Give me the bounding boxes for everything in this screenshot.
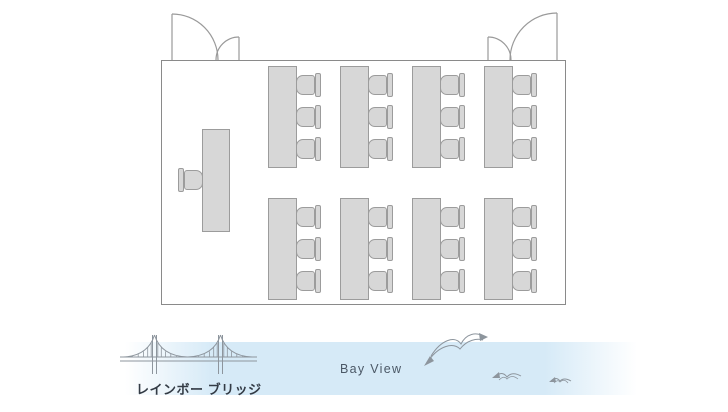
double-door-left-icon [172,14,239,60]
chair-seat [368,239,387,259]
chair-back [315,73,321,97]
chair-seat [512,271,531,291]
chair-seat [296,75,315,95]
table [340,198,369,300]
chair [296,105,321,129]
head-table [202,129,230,232]
chair-seat [440,239,459,259]
chair-back [387,205,393,229]
chair [368,73,393,97]
chair [512,137,537,161]
chair [512,105,537,129]
chair-seat [440,207,459,227]
chair-back [315,205,321,229]
table-group [340,198,394,300]
chair-back [531,73,537,97]
chair [440,73,465,97]
seagull-icon [492,372,521,380]
chair-back [531,237,537,261]
chair-back [315,269,321,293]
chair-back [178,168,184,192]
chair-seat [368,207,387,227]
table-group [484,66,538,168]
table [484,66,513,168]
chair-back [531,105,537,129]
table-group [412,66,466,168]
chair-seat [184,170,203,190]
chair-back [459,73,465,97]
bridge-hangers [132,343,242,357]
suspension-bridge-icon [112,330,262,382]
chair [512,73,537,97]
chair-seat [440,271,459,291]
chair-back [315,237,321,261]
chair-back [387,105,393,129]
table-group [268,198,322,300]
chair [440,105,465,129]
chair-back [315,105,321,129]
table [268,198,297,300]
double-door-right-icon [488,13,557,60]
chair [296,237,321,261]
chair-back [459,105,465,129]
table [412,66,441,168]
chair-seat [440,107,459,127]
chair-seat [368,139,387,159]
chair [440,269,465,293]
chair-back [459,269,465,293]
table-group [268,66,322,168]
chair-back [387,73,393,97]
chair-seat [512,139,531,159]
chair-back [531,137,537,161]
chair-back [459,205,465,229]
chair [440,237,465,261]
chair [440,205,465,229]
chair [368,105,393,129]
chair-seat [512,239,531,259]
chair-seat [296,207,315,227]
chair-seat [296,107,315,127]
chair [296,269,321,293]
table [268,66,297,168]
entrance-doors [160,10,570,62]
presenter-chair [178,168,203,192]
chair [368,269,393,293]
chair-seat [296,271,315,291]
chair-back [531,269,537,293]
chair [368,205,393,229]
chair-back [459,237,465,261]
chair [512,205,537,229]
table [412,198,441,300]
chair-seat [296,139,315,159]
bay-view-label: Bay View [340,362,402,376]
chair-seat [512,75,531,95]
chair-back [459,137,465,161]
chair [368,137,393,161]
floor-plan-page: Bay View レインボー ブリッジ [0,0,728,412]
chair-seat [368,271,387,291]
chair-back [531,205,537,229]
chair [296,137,321,161]
chair-seat [512,107,531,127]
chair-seat [368,75,387,95]
table-group [484,198,538,300]
chair-back [387,237,393,261]
chair [512,237,537,261]
chair-seat [512,207,531,227]
chair-seat [440,139,459,159]
seagull-icon [424,333,488,366]
bridge-label: レインボー ブリッジ [136,379,262,398]
chair [296,205,321,229]
chair-back [387,137,393,161]
seagulls-icon [415,328,585,394]
chair [368,237,393,261]
seagull-icon [549,377,571,383]
chair-back [387,269,393,293]
table-group [412,198,466,300]
chair-seat [368,107,387,127]
chair-seat [440,75,459,95]
chair [512,269,537,293]
table [484,198,513,300]
chair-seat [296,239,315,259]
table-group [340,66,394,168]
chair-back [315,137,321,161]
chair [296,73,321,97]
table [340,66,369,168]
chair [440,137,465,161]
